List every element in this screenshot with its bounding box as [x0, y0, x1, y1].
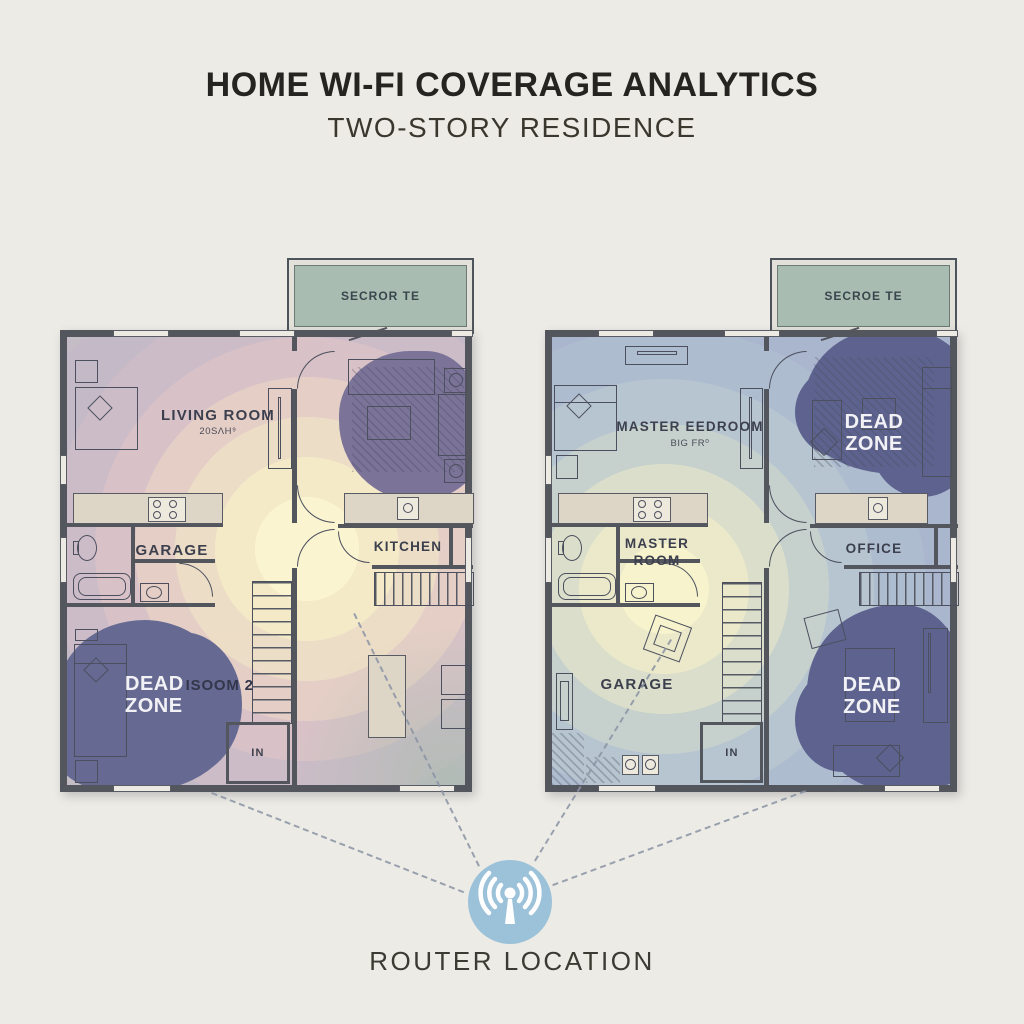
floor2-porch-label: SECROE TE — [824, 289, 902, 303]
floor1-porch-area: SECROR TE — [294, 265, 467, 327]
window-marker — [239, 330, 295, 337]
wall-segment — [372, 565, 473, 569]
window-marker — [936, 330, 958, 337]
furniture-outline — [441, 699, 471, 729]
kitchen-label: KITCHEN — [358, 539, 458, 556]
window-marker — [60, 537, 67, 583]
dead-zone-label-floor1: DEAD ISOOM 2 ZONE — [125, 673, 254, 718]
floor-texture — [552, 733, 584, 785]
furniture-outline — [558, 541, 564, 555]
fixture — [625, 759, 636, 770]
signal-connector-line — [211, 792, 464, 893]
door-swing-arc — [769, 351, 807, 389]
window-marker — [598, 330, 654, 337]
garage-label-floor2: GARAGE — [587, 676, 687, 693]
fixture — [631, 586, 647, 599]
dead-zone-label-floor2-top: DEAD ZONE — [829, 411, 919, 456]
window-marker — [113, 330, 169, 337]
window-marker — [465, 537, 472, 583]
window-marker — [950, 537, 957, 583]
door-swing-arc — [769, 485, 807, 523]
window-marker — [724, 330, 780, 337]
wall-segment — [934, 528, 938, 569]
furniture-outline — [563, 577, 611, 596]
fixture — [449, 464, 463, 478]
furniture-outline — [367, 406, 411, 440]
dead-zone-label-floor2-bottom: DEAD ZONE — [827, 674, 917, 719]
floor2-plan: MASTER EEDROOM BIG FR⁰ DEAD ZONE MASTER … — [545, 330, 957, 792]
furniture-outline — [74, 644, 127, 664]
wall-segment — [67, 603, 215, 607]
furniture-outline — [637, 351, 677, 355]
fixture — [449, 373, 463, 387]
door-swing-arc — [297, 529, 335, 567]
fixture — [153, 500, 161, 508]
fixture — [654, 500, 662, 508]
wall-segment — [764, 568, 769, 785]
wall-segment — [135, 559, 215, 563]
living-room-label: LIVING ROOM 20SΛH⁹ — [133, 407, 303, 437]
window-marker — [113, 785, 171, 792]
wall-segment — [292, 337, 297, 351]
fixture — [403, 503, 413, 513]
floor2-porch: SECROE TE — [770, 258, 957, 334]
office-label: OFFICE — [824, 541, 924, 558]
furniture-outline — [75, 629, 98, 641]
staircase — [722, 582, 762, 724]
window-marker — [60, 455, 67, 485]
door-swing-arc — [769, 529, 807, 567]
furniture-outline — [75, 760, 98, 783]
entry-label-floor2: IN — [704, 747, 760, 759]
wifi-antenna-icon — [468, 860, 552, 944]
signal-connector-line — [552, 790, 806, 886]
window-marker — [399, 785, 455, 792]
fixture — [654, 511, 662, 519]
furniture-outline — [438, 394, 466, 456]
furniture-outline — [75, 360, 98, 383]
staircase — [374, 572, 474, 606]
garage-label-floor1: GARAGE — [122, 542, 222, 559]
wall-segment — [292, 568, 297, 785]
wall-segment — [552, 603, 700, 607]
door-swing-arc — [179, 563, 213, 597]
floor1-porch: SECROR TE — [287, 258, 474, 334]
kitchen-counter — [368, 655, 406, 738]
page-subtitle: TWO-STORY RESIDENCE — [0, 112, 1024, 144]
furniture-outline — [560, 681, 569, 721]
wall-segment — [131, 527, 135, 607]
router-location-marker — [468, 860, 552, 944]
floor1-plan: LIVING ROOM 20SΛH⁹ GARAGE KITCHEN IN DEA… — [60, 330, 472, 792]
infographic-canvas: HOME WI-FI COVERAGE ANALYTICS TWO-STORY … — [0, 0, 1024, 1024]
router-location-label: ROUTER LOCATION — [0, 946, 1024, 977]
window-marker — [545, 537, 552, 583]
fixture — [638, 511, 646, 519]
wall-segment — [764, 389, 769, 523]
wall-segment — [844, 565, 958, 569]
furniture-outline — [556, 455, 578, 479]
fixture — [169, 511, 177, 519]
master-bedroom-label: MASTER EEDROOM BIG FR⁰ — [605, 419, 775, 449]
staircase — [252, 581, 292, 724]
floor1-porch-label: SECROR TE — [341, 289, 420, 303]
staircase — [859, 572, 959, 606]
fixture — [153, 511, 161, 519]
furniture-outline — [441, 665, 471, 695]
fixture — [645, 759, 656, 770]
floor2-porch-area: SECROE TE — [777, 265, 950, 327]
furniture-outline — [928, 633, 931, 693]
fixture — [873, 503, 883, 513]
furniture-outline — [73, 541, 79, 555]
fixture — [169, 500, 177, 508]
window-marker — [451, 330, 473, 337]
window-marker — [545, 455, 552, 485]
furniture-outline — [348, 359, 435, 395]
page-title: HOME WI-FI COVERAGE ANALYTICS — [0, 66, 1024, 105]
furniture-outline — [75, 387, 138, 450]
door-swing-arc — [297, 485, 335, 523]
door-swing-arc — [297, 351, 335, 389]
fixture — [146, 586, 162, 599]
fixture — [77, 535, 97, 561]
furniture-outline — [625, 346, 688, 365]
furniture-outline — [78, 577, 126, 596]
master-room-label: MASTER ROOM — [607, 536, 707, 570]
furniture-outline — [554, 385, 617, 403]
window-marker — [598, 785, 656, 792]
entry-label-floor1: IN — [230, 747, 286, 759]
furniture-outline — [922, 367, 952, 389]
window-marker — [884, 785, 940, 792]
fixture — [562, 535, 582, 561]
fixture — [638, 500, 646, 508]
furniture-outline — [803, 609, 846, 649]
wall-segment — [764, 337, 769, 351]
furniture-outline — [923, 628, 948, 723]
